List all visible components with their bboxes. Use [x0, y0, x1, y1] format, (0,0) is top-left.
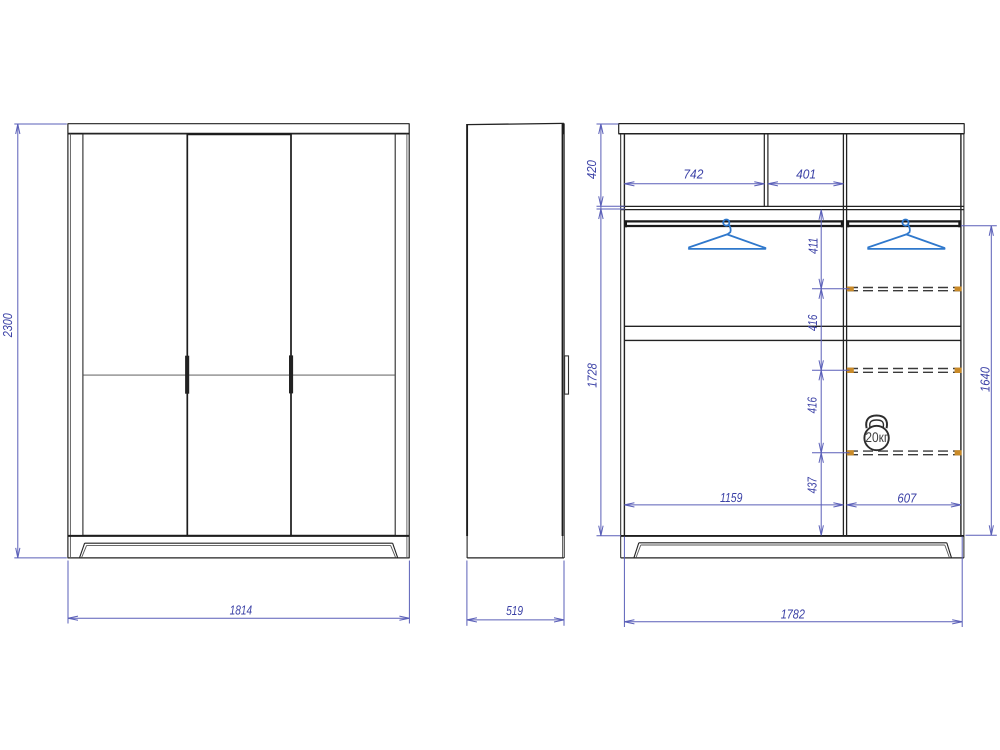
svg-text:1782: 1782 — [781, 606, 806, 621]
svg-text:607: 607 — [897, 490, 917, 505]
svg-text:437: 437 — [804, 476, 819, 493]
svg-text:420: 420 — [584, 159, 599, 179]
svg-text:1728: 1728 — [585, 363, 600, 388]
svg-text:742: 742 — [683, 166, 704, 181]
svg-text:2300: 2300 — [0, 313, 15, 338]
svg-text:1159: 1159 — [720, 490, 743, 505]
svg-text:1640: 1640 — [978, 366, 993, 392]
svg-text:416: 416 — [805, 396, 820, 413]
svg-text:401: 401 — [796, 167, 816, 182]
svg-text:519: 519 — [506, 603, 523, 618]
svg-text:20кг: 20кг — [865, 429, 888, 445]
svg-text:416: 416 — [805, 314, 820, 331]
svg-text:1814: 1814 — [230, 602, 253, 617]
svg-text:411: 411 — [805, 238, 820, 255]
